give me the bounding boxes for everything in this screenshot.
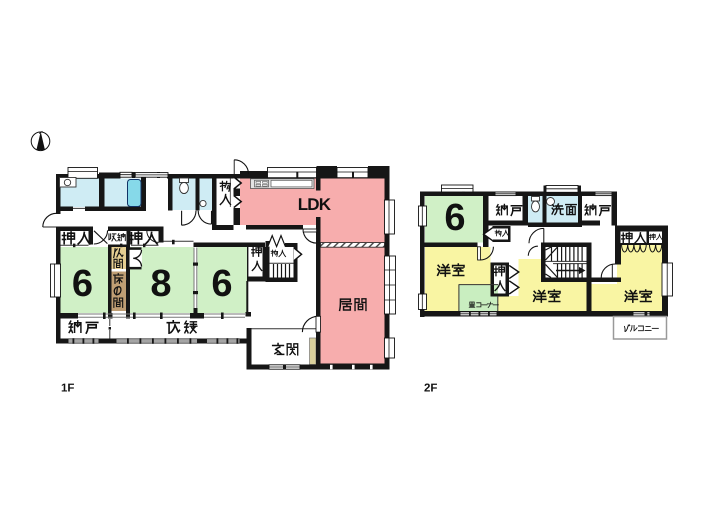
svg-text:6: 6 (211, 263, 232, 305)
svg-text:8: 8 (150, 263, 171, 305)
svg-text:LDK: LDK (298, 195, 332, 214)
svg-text:1F: 1F (61, 383, 74, 395)
svg-text:6: 6 (444, 197, 465, 239)
svg-text:6: 6 (72, 263, 93, 305)
svg-text:2F: 2F (424, 383, 437, 395)
